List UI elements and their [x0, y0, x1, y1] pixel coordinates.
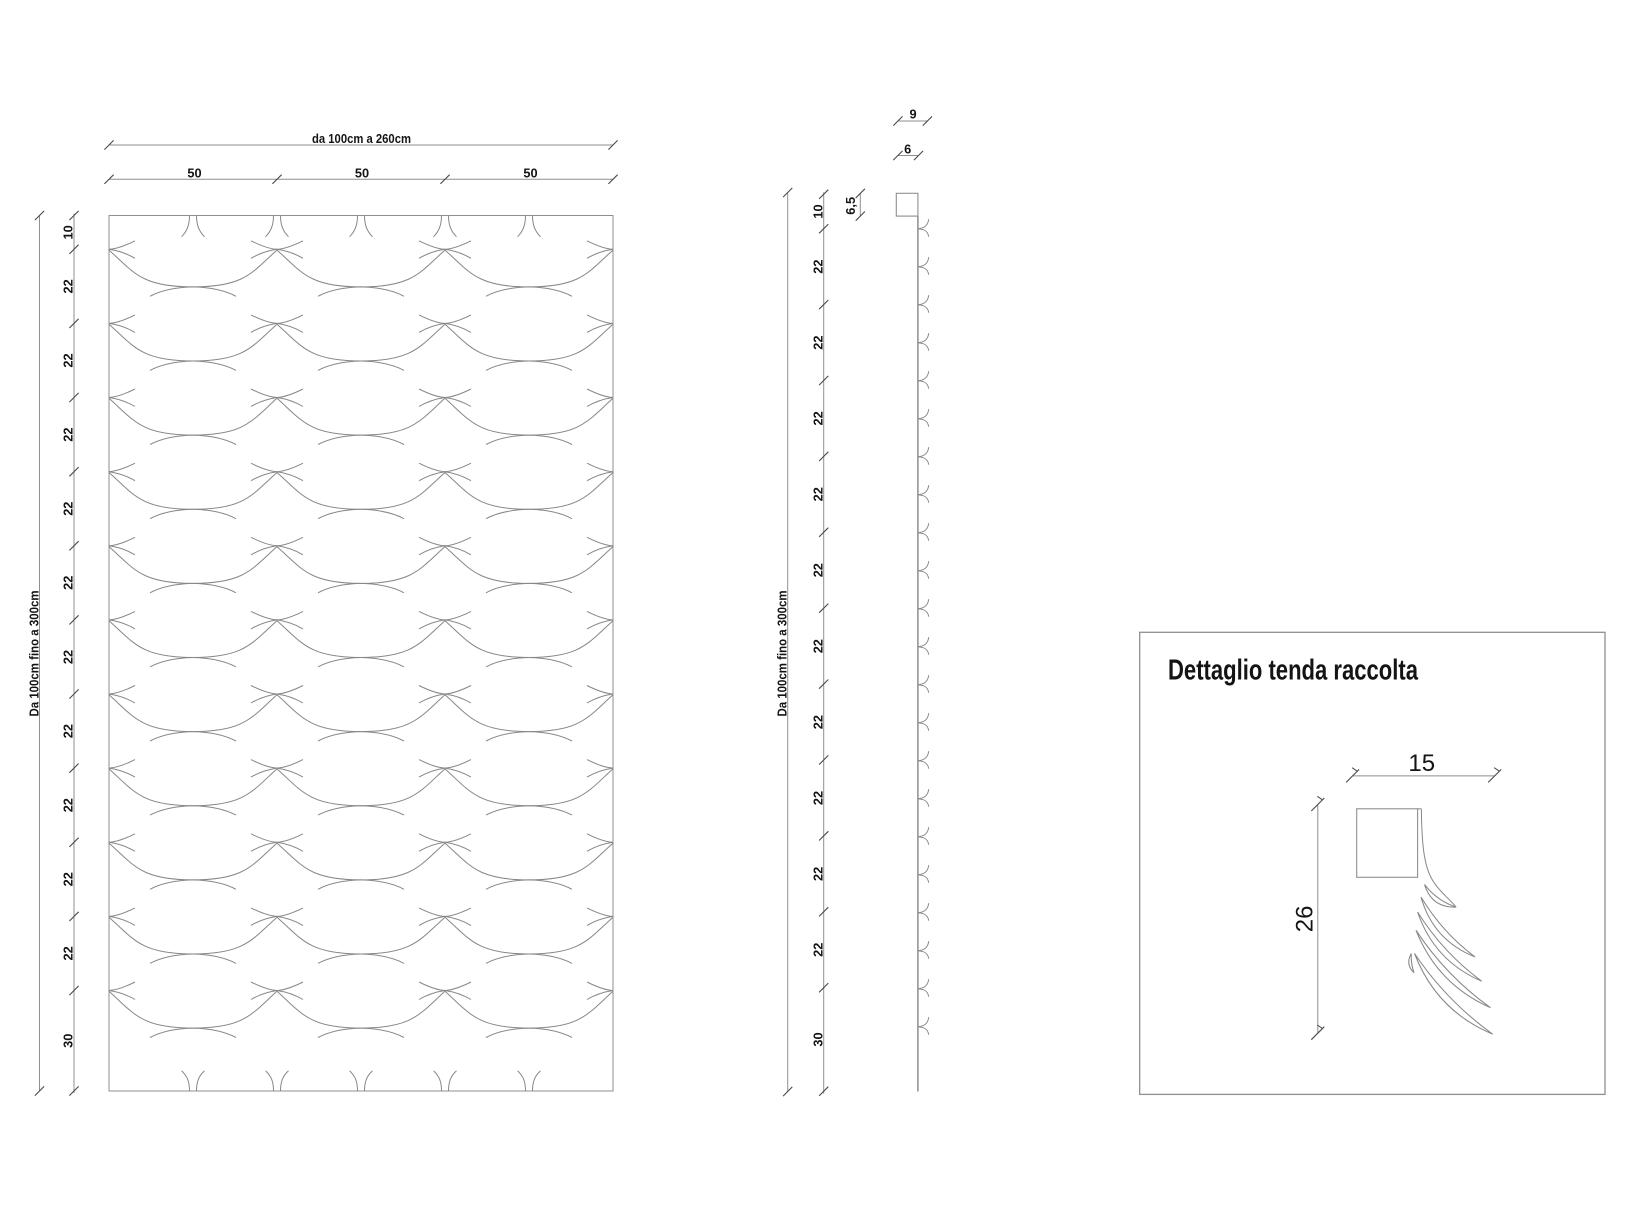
svg-text:22: 22 [61, 650, 76, 664]
svg-text:30: 30 [61, 1034, 76, 1048]
svg-text:22: 22 [810, 487, 825, 501]
svg-text:22: 22 [810, 335, 825, 349]
svg-text:22: 22 [810, 563, 825, 577]
svg-text:50: 50 [523, 165, 537, 180]
svg-text:22: 22 [61, 502, 76, 516]
svg-text:10: 10 [810, 204, 825, 218]
svg-text:Dettaglio tenda raccolta: Dettaglio tenda raccolta [1168, 655, 1419, 687]
svg-text:22: 22 [61, 427, 76, 441]
svg-text:22: 22 [61, 353, 76, 367]
svg-text:22: 22 [61, 724, 76, 738]
svg-text:30: 30 [810, 1032, 825, 1046]
svg-text:22: 22 [810, 791, 825, 805]
svg-text:22: 22 [810, 715, 825, 729]
svg-text:22: 22 [61, 798, 76, 812]
svg-text:50: 50 [187, 165, 201, 180]
svg-text:22: 22 [810, 867, 825, 881]
svg-text:22: 22 [810, 411, 825, 425]
svg-text:22: 22 [810, 943, 825, 957]
svg-text:Da 100cm fino a 300cm: Da 100cm fino a 300cm [26, 591, 41, 717]
svg-text:10: 10 [61, 225, 76, 239]
svg-text:22: 22 [61, 872, 76, 886]
svg-text:6,5: 6,5 [843, 197, 858, 215]
svg-text:6: 6 [904, 141, 911, 156]
svg-text:15: 15 [1408, 750, 1435, 777]
svg-text:Da 100cm fino a 300cm: Da 100cm fino a 300cm [775, 591, 790, 717]
svg-text:22: 22 [61, 946, 76, 960]
svg-text:22: 22 [61, 576, 76, 590]
svg-text:22: 22 [810, 259, 825, 273]
svg-text:22: 22 [810, 639, 825, 653]
svg-text:da 100cm a 260cm: da 100cm a 260cm [312, 131, 411, 146]
svg-text:50: 50 [355, 165, 369, 180]
svg-text:22: 22 [61, 279, 76, 293]
svg-text:9: 9 [909, 107, 916, 122]
svg-text:26: 26 [1292, 906, 1319, 933]
